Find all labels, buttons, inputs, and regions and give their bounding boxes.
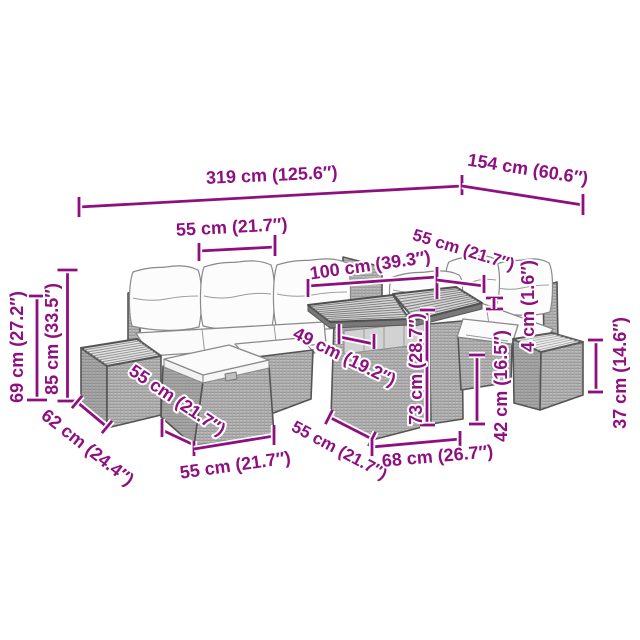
svg-text:73 cm (28.7″): 73 cm (28.7″)	[406, 313, 426, 425]
svg-text:37 cm (14.6″): 37 cm (14.6″)	[610, 317, 630, 429]
svg-text:69 cm (27.2″): 69 cm (27.2″)	[7, 291, 27, 403]
svg-text:4 cm (1.6″): 4 cm (1.6″)	[518, 260, 538, 352]
svg-text:42 cm (16.5″): 42 cm (16.5″)	[491, 330, 511, 442]
svg-text:85 cm (33.5″): 85 cm (33.5″)	[42, 283, 62, 395]
